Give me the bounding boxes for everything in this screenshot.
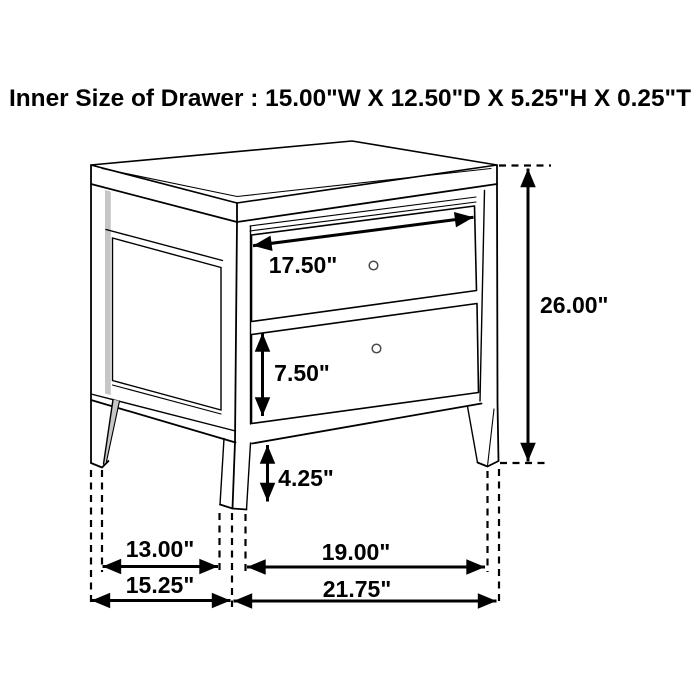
dim-label-front-leg-spacing: 19.00" bbox=[322, 539, 390, 565]
dim-label-overall-width: 21.75" bbox=[323, 576, 391, 602]
drawer-2-knob bbox=[372, 344, 381, 353]
page-title: Inner Size of Drawer : 15.00"W X 12.50"D… bbox=[9, 85, 691, 112]
dim-label-drawer-width: 17.50" bbox=[269, 252, 337, 278]
dim-label-overall-height: 26.00" bbox=[540, 292, 608, 318]
dim-label-floor-clearance: 4.25" bbox=[278, 465, 334, 491]
drawer-1-knob bbox=[369, 261, 378, 270]
dim-label-side-leg-spacing: 13.00" bbox=[126, 536, 194, 562]
screenshot-root: Inner Size of Drawer : 15.00"W X 12.50"D… bbox=[0, 0, 700, 700]
dim-label-drawer-front-height: 7.50" bbox=[274, 360, 330, 386]
dimension-diagram: Inner Size of Drawer : 15.00"W X 12.50"D… bbox=[0, 0, 700, 700]
side-stile-shadow bbox=[105, 190, 111, 395]
dim-label-overall-depth: 15.25" bbox=[126, 572, 194, 598]
